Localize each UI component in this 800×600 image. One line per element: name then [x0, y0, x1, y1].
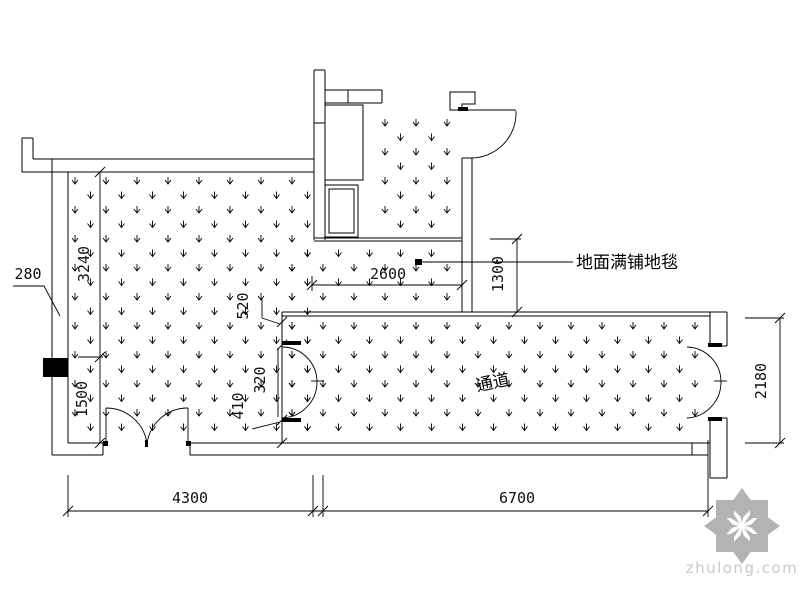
doors: [103, 107, 727, 447]
east-double-door: [687, 347, 727, 418]
dim-label-2180: 2180: [752, 363, 770, 399]
zhulong-watermark: zhulong.com: [686, 488, 799, 577]
wall-column-block: [43, 358, 68, 377]
bottom-double-door: [106, 408, 188, 444]
floor-plan-drawing: 280 3240 1500 4300 6700 2600 1300 2180 5…: [0, 0, 800, 600]
dim-label-4300: 4300: [172, 489, 208, 507]
carpet-note: 地面满铺地毯: [415, 253, 678, 273]
upper-door-stop: [458, 107, 468, 111]
zhulong-logo-icon: [704, 488, 780, 564]
bottom-door-stop-right: [186, 441, 191, 446]
floor-plan-canvas: 280 3240 1500 4300 6700 2600 1300 2180 5…: [0, 0, 800, 600]
dim-label-410: 410: [229, 392, 247, 419]
bottom-door-stop-left: [103, 441, 108, 446]
carpet-arrows: [72, 177, 311, 431]
west-door-jamb-bottom: [282, 418, 301, 422]
watermark-text: zhulong.com: [686, 559, 799, 577]
fixtures: [325, 90, 475, 237]
dim-label-320: 320: [251, 366, 269, 393]
carpet-arrows: [382, 119, 450, 228]
east-door-jamb-top: [708, 343, 722, 347]
carpet-note-label: 地面满铺地毯: [576, 253, 678, 273]
dim-label-520: 520: [234, 292, 252, 319]
dim-label-280: 280: [14, 265, 41, 283]
dim-label-6700: 6700: [499, 489, 535, 507]
dim-label-1300: 1300: [489, 256, 507, 292]
upper-room-door: [463, 110, 516, 158]
bottom-door-meet-stop: [145, 440, 148, 447]
east-door-jamb-bottom: [708, 417, 722, 421]
west-double-door: [282, 347, 324, 418]
